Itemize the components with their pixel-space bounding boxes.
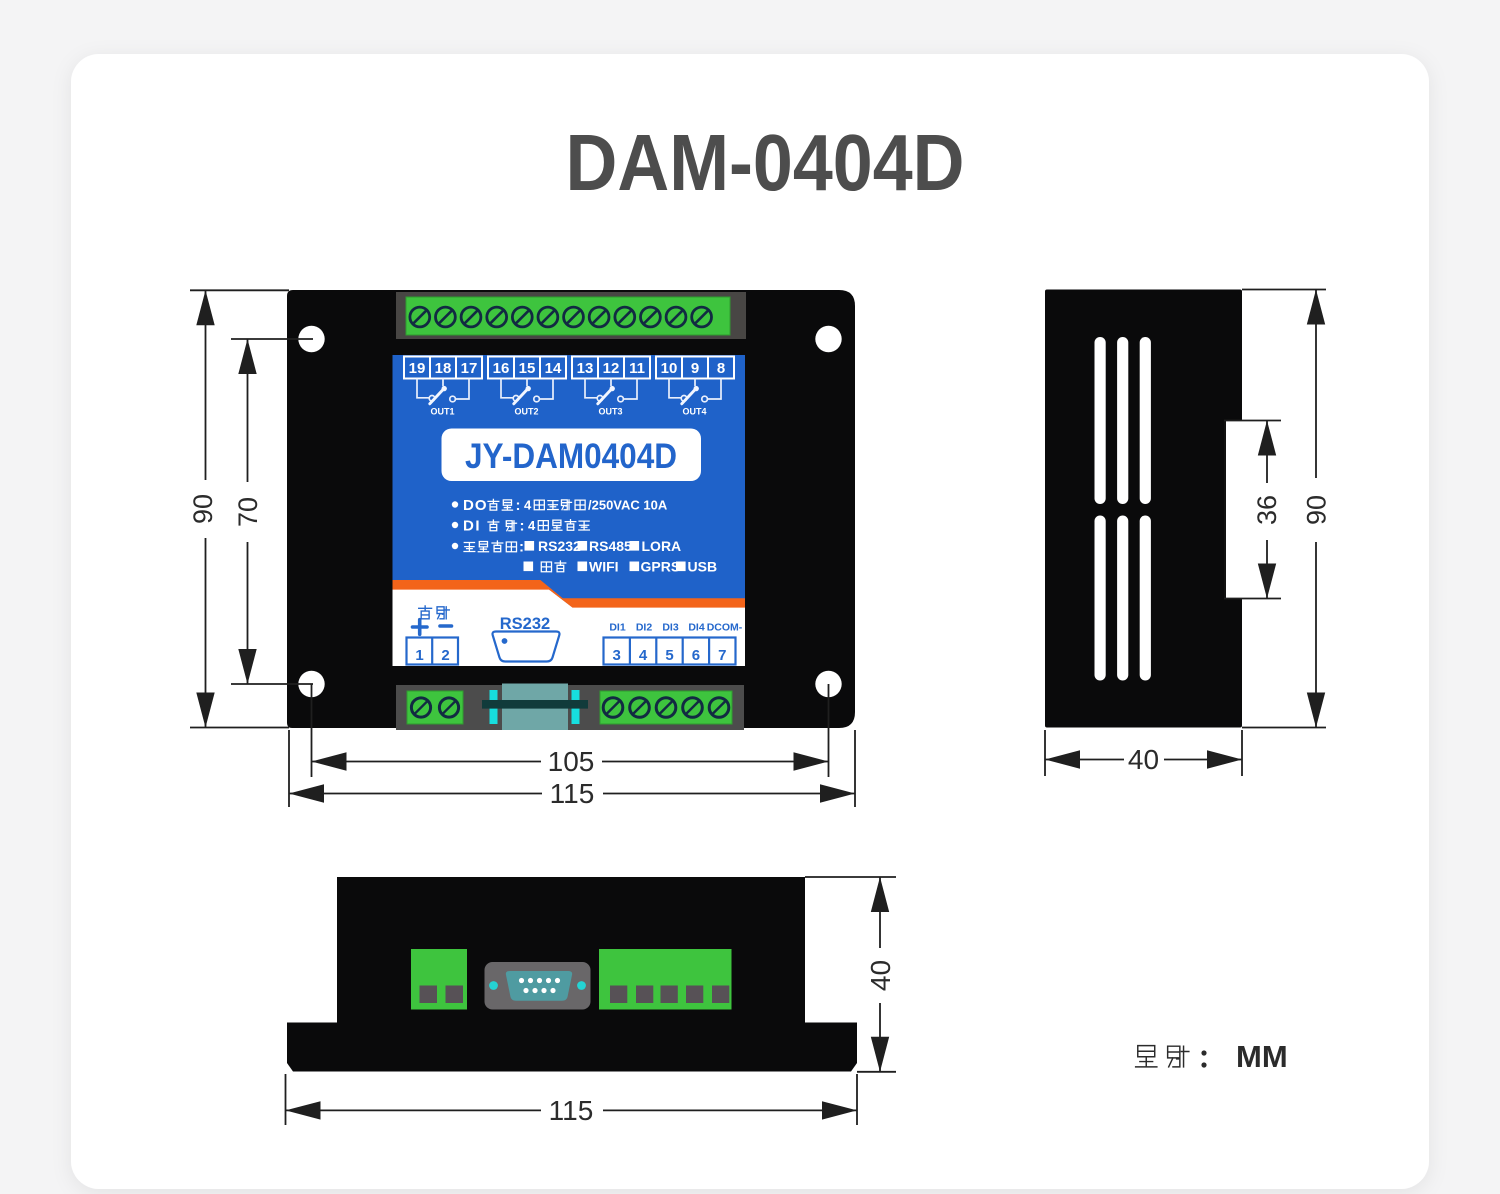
svg-text:12: 12 bbox=[603, 360, 620, 377]
svg-text:WIFI: WIFI bbox=[589, 559, 619, 575]
svg-text:9: 9 bbox=[691, 360, 699, 377]
svg-text:40: 40 bbox=[865, 960, 896, 991]
svg-text::: : bbox=[519, 539, 524, 556]
svg-text:8: 8 bbox=[717, 360, 725, 377]
svg-text:DI1: DI1 bbox=[609, 622, 626, 634]
svg-text:16: 16 bbox=[493, 360, 510, 377]
svg-text:4: 4 bbox=[639, 647, 648, 664]
svg-text:6: 6 bbox=[692, 647, 700, 664]
svg-text:115: 115 bbox=[550, 778, 595, 809]
svg-text:10: 10 bbox=[661, 360, 678, 377]
svg-text:RS232: RS232 bbox=[538, 538, 581, 554]
svg-text:LORA: LORA bbox=[642, 538, 682, 554]
svg-text:40: 40 bbox=[1128, 744, 1159, 775]
svg-text:105: 105 bbox=[548, 746, 595, 777]
svg-text:17: 17 bbox=[461, 360, 478, 377]
svg-text:3: 3 bbox=[613, 647, 621, 664]
svg-text:GPRS: GPRS bbox=[641, 559, 681, 575]
svg-text:/250VAC 10A: /250VAC 10A bbox=[588, 498, 668, 513]
svg-text:70: 70 bbox=[233, 497, 263, 527]
svg-text:OUT1: OUT1 bbox=[430, 407, 454, 417]
svg-text:DI: DI bbox=[463, 518, 481, 535]
svg-text:OUT4: OUT4 bbox=[682, 407, 706, 417]
svg-text:DI2: DI2 bbox=[636, 622, 653, 634]
svg-text:15: 15 bbox=[519, 360, 536, 377]
svg-text:115: 115 bbox=[549, 1095, 594, 1126]
svg-text:DI3: DI3 bbox=[662, 622, 679, 634]
svg-text:5: 5 bbox=[665, 647, 673, 664]
svg-text:4: 4 bbox=[528, 518, 536, 533]
svg-text:11: 11 bbox=[629, 360, 645, 377]
svg-text:90: 90 bbox=[1302, 495, 1332, 525]
svg-text:90: 90 bbox=[188, 494, 218, 524]
svg-text:13: 13 bbox=[577, 360, 594, 377]
svg-text:36: 36 bbox=[1252, 495, 1282, 525]
svg-text:RS232: RS232 bbox=[500, 615, 550, 633]
svg-text:DO: DO bbox=[463, 497, 488, 514]
svg-text:MM: MM bbox=[1236, 1039, 1288, 1074]
svg-text:JY-DAM0404D: JY-DAM0404D bbox=[465, 436, 677, 476]
svg-text:OUT2: OUT2 bbox=[514, 407, 538, 417]
svg-text:4: 4 bbox=[524, 498, 532, 513]
svg-text:18: 18 bbox=[435, 360, 452, 377]
svg-text:2: 2 bbox=[441, 647, 449, 664]
svg-text:DCOM-: DCOM- bbox=[707, 622, 743, 634]
svg-text:DI4: DI4 bbox=[688, 622, 705, 634]
svg-text:1: 1 bbox=[415, 647, 423, 664]
svg-text:OUT3: OUT3 bbox=[598, 407, 622, 417]
svg-text:DAM-0404D: DAM-0404D bbox=[566, 118, 965, 207]
svg-text::: : bbox=[516, 497, 521, 514]
svg-text:USB: USB bbox=[688, 559, 718, 575]
svg-text:19: 19 bbox=[409, 360, 426, 377]
svg-text:14: 14 bbox=[545, 360, 562, 377]
svg-text:RS485: RS485 bbox=[589, 538, 632, 554]
svg-text:7: 7 bbox=[718, 647, 726, 664]
svg-text::: : bbox=[520, 518, 525, 535]
